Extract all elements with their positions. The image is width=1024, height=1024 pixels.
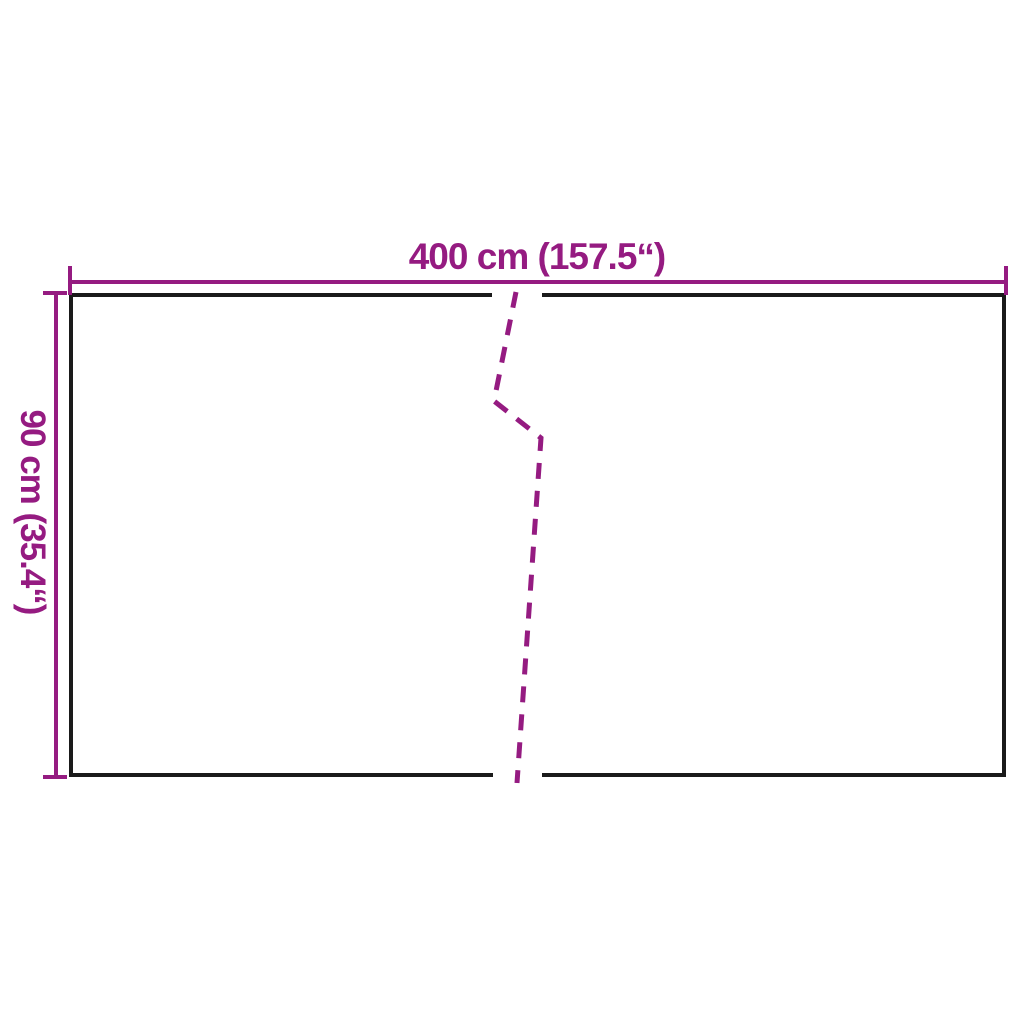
- panel-outline: [71, 295, 1004, 775]
- height-dimension-label: 90 cm (35.4“): [10, 372, 50, 652]
- dimension-drawing: [0, 0, 1024, 1024]
- break-line: [494, 292, 541, 783]
- product-dimension-diagram: 400 cm (157.5“) 90 cm (35.4“): [0, 0, 1024, 1024]
- width-dimension-label: 400 cm (157.5“): [337, 238, 737, 275]
